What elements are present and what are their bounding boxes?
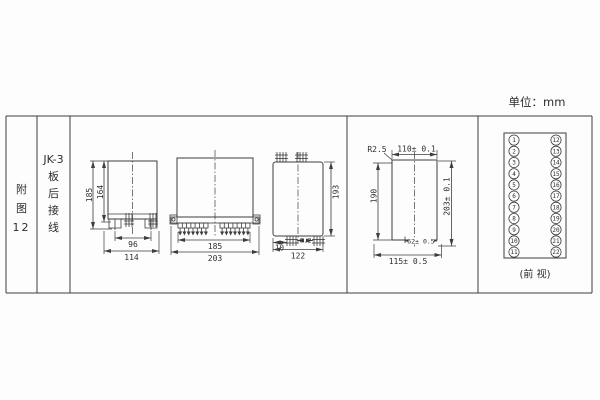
dim-label-62-slot-width: 62± 0.5 xyxy=(407,238,434,246)
title-char-hou: 后 xyxy=(48,187,59,200)
figure-index-char2: 图 xyxy=(16,202,27,215)
drawing-front-view: 185 203 xyxy=(170,150,260,263)
manual-figure-page: 单位：mm 附 图 12 JK-3 板 后 接 线 xyxy=(0,0,600,400)
terminal-22: 22 xyxy=(552,249,560,256)
terminal-16: 16 xyxy=(552,182,560,189)
drawing-side-view-large: 193 6.2 10 122 xyxy=(273,152,341,261)
terminal-layout: 1 2 3 4 5 6 7 8 9 10 11 12 13 14 15 16 1… xyxy=(504,133,566,281)
terminal-6: 6 xyxy=(512,193,516,200)
dim-label-164-height: 164 xyxy=(96,185,105,200)
title-char-xian: 线 xyxy=(48,220,59,234)
terminal-15: 15 xyxy=(552,171,560,178)
dim-label-190-cutout-height: 190 xyxy=(370,189,379,204)
title-model: JK-3 xyxy=(42,153,63,166)
dim-label-203-front-width: 203 xyxy=(208,254,223,263)
dim-label-96-width: 96 xyxy=(128,240,138,249)
stud-cluster xyxy=(124,213,158,227)
figure-index: 附 图 12 xyxy=(13,182,31,234)
figure-drawing: 单位：mm 附 图 12 JK-3 板 后 接 线 xyxy=(0,0,600,400)
terminal-2: 2 xyxy=(512,148,516,155)
dim-label-114-width: 114 xyxy=(124,253,139,262)
title-char-ban: 板 xyxy=(48,169,59,183)
dim-label-193-height: 193 xyxy=(332,185,341,200)
terminal-9: 9 xyxy=(512,227,516,234)
terminal-14: 14 xyxy=(552,160,560,167)
unit-label: 单位：mm xyxy=(509,95,566,109)
drawing-side-view-small: 185 164 96 114 xyxy=(85,152,159,262)
dim-label-6-2-pitch: 6.2 xyxy=(300,237,312,245)
terminal-11: 11 xyxy=(510,249,518,256)
title-char-jie: 接 xyxy=(48,204,59,217)
terminal-pins xyxy=(180,228,248,232)
dim-label-10-offset: 10 xyxy=(275,244,285,253)
terminal-12: 12 xyxy=(552,137,560,144)
dim-label-185-front-width: 185 xyxy=(208,242,223,251)
figure-index-char1: 附 xyxy=(16,182,27,196)
terminal-13: 13 xyxy=(552,148,560,155)
terminal-21: 21 xyxy=(552,238,560,245)
terminal-4: 4 xyxy=(512,171,516,178)
dim-label-110-cutout-width: 110± 0.1 xyxy=(397,145,436,154)
dim-label-115-mount-width: 115± 0.5 xyxy=(389,257,428,266)
drawing-panel-cutout: R2.5 110± 0.1 190 203± 0.1 62± 0.5 115± … xyxy=(367,145,456,267)
figure-index-number: 12 xyxy=(13,221,31,234)
terminal-5: 5 xyxy=(512,182,516,189)
terminal-18: 18 xyxy=(552,204,560,211)
dim-label-corner-radius: R2.5 xyxy=(367,145,386,154)
terminal-10: 10 xyxy=(510,238,518,245)
terminal-20: 20 xyxy=(552,227,560,234)
screw-terminals xyxy=(275,152,325,246)
terminal-17: 17 xyxy=(552,193,560,200)
terminal-1: 1 xyxy=(512,137,516,144)
dim-label-203-overall-height: 203± 0.1 xyxy=(443,177,452,216)
terminal-7: 7 xyxy=(512,204,516,211)
figure-title: JK-3 板 后 接 线 xyxy=(42,153,63,234)
front-view-caption: (前 视) xyxy=(520,268,551,281)
terminal-8: 8 xyxy=(512,216,516,223)
terminal-3: 3 xyxy=(512,160,516,167)
dim-label-185-height: 185 xyxy=(85,188,94,203)
terminal-strip xyxy=(178,223,250,228)
dim-label-122-width: 122 xyxy=(291,252,306,261)
terminal-19: 19 xyxy=(552,216,560,223)
